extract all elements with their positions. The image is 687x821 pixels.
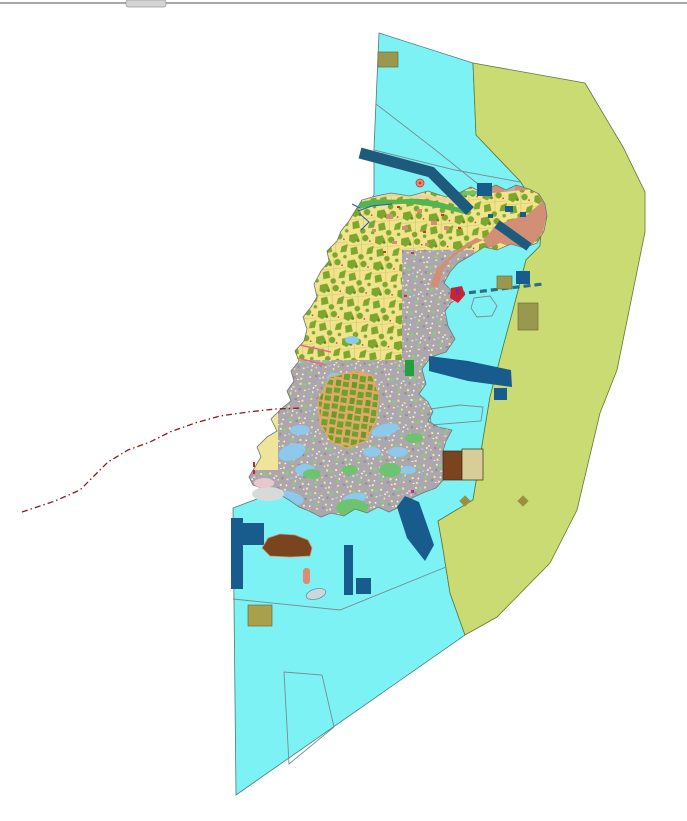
khaki-rect-top xyxy=(378,52,398,67)
pink-shore-patch xyxy=(254,478,274,488)
harbor-square-east xyxy=(516,271,530,284)
scrollbar-tab[interactable] xyxy=(126,0,166,7)
east-brown-panel xyxy=(443,451,462,480)
gray-shore-blob xyxy=(252,487,284,501)
south-pier-square xyxy=(356,578,371,594)
harbor-rect-north xyxy=(477,183,492,196)
west-jetty-vertical xyxy=(231,518,243,589)
khaki-rect-bottom xyxy=(248,605,272,626)
south-pier-strip xyxy=(344,545,353,595)
bright-green-site xyxy=(405,360,414,376)
map-canvas[interactable] xyxy=(0,0,687,821)
salmon-pill xyxy=(303,568,310,584)
west-jetty-arm xyxy=(243,523,264,545)
east-khaki-panel xyxy=(462,449,483,480)
buoy-marker-dot xyxy=(419,182,422,185)
khaki-square-mid xyxy=(497,276,512,289)
harbor-square-se xyxy=(494,388,507,400)
ferry-terminal-purple xyxy=(456,289,459,295)
khaki-rect-east xyxy=(518,303,538,330)
